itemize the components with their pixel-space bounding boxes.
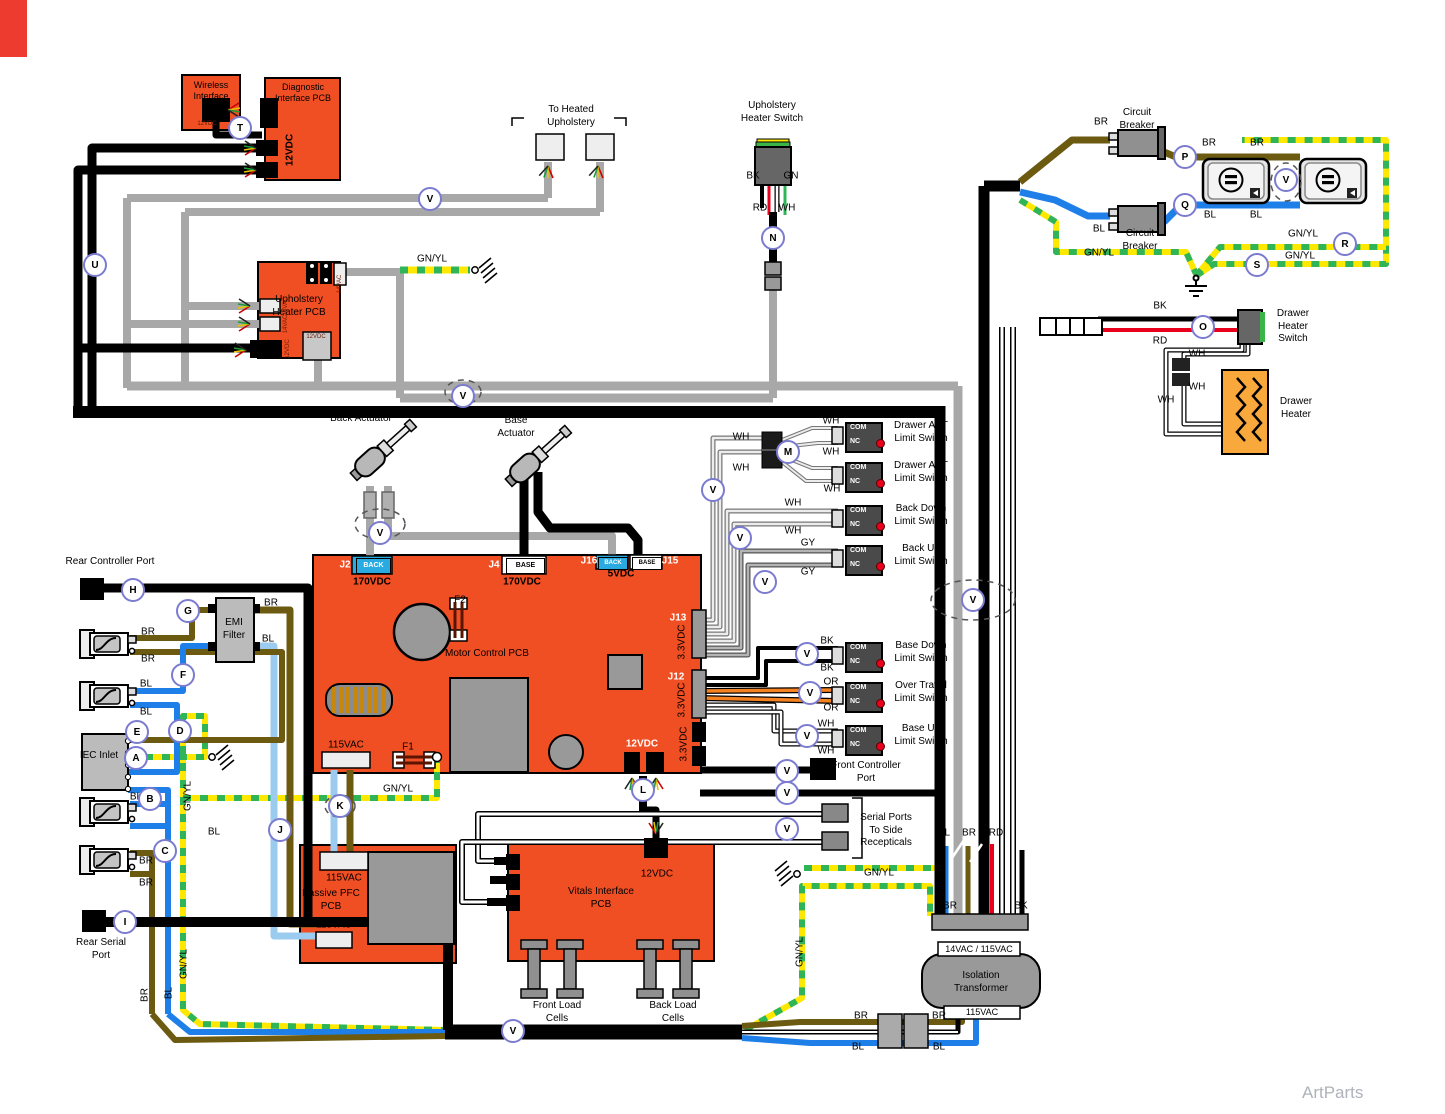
marker-p: P	[1173, 145, 1197, 169]
wire-label: BL	[933, 1042, 945, 1053]
j15-base-tag: BASE	[632, 557, 662, 570]
heated-upholstery-label: To Heated Upholstery	[531, 104, 611, 129]
j2-back-tag: BACK	[356, 558, 391, 574]
marker-o: O	[1191, 315, 1215, 339]
wire-label: BR	[932, 1011, 946, 1022]
marker-v: V	[775, 759, 799, 783]
passive-pfc-title: Passive PFC PCB	[291, 888, 371, 913]
wire-label: BK	[1153, 301, 1166, 312]
wireless-pcb-conn-label: 12VDC	[197, 121, 216, 127]
iec-inlet-label: IEC Inlet	[79, 750, 119, 763]
wire-label: BK	[820, 663, 833, 674]
marker-v: V	[798, 681, 822, 705]
j4-voltage: 170VDC	[503, 577, 541, 588]
diagnostic-pcb-conn-label: 12VDC	[285, 134, 296, 166]
wire-label: GN/YL	[417, 254, 447, 265]
rear-serial-port-label: Rear Serial Port	[66, 937, 136, 962]
wire-label: WH	[785, 526, 802, 537]
wire-label: WH	[1189, 382, 1206, 393]
marker-v: V	[368, 521, 392, 545]
motor-115vac-label: 115VAC	[328, 740, 364, 751]
back-actuator-label: Back Actuator	[330, 413, 392, 426]
wire-label: WH	[818, 746, 835, 757]
wire-label: BR	[139, 856, 153, 867]
watermark: ArtParts	[1302, 1083, 1363, 1103]
wire-label: GN/YL	[1285, 251, 1315, 262]
j12-voltage: 3.3VDC	[677, 682, 688, 717]
drawer-switch-label: DrawerHeaterSwitch	[1264, 308, 1322, 346]
front-load-cells-label: Front Load Cells	[526, 1000, 588, 1025]
wire-label: GN/YL	[864, 868, 894, 879]
wire-label: WH	[823, 447, 840, 458]
transformer-bottom-conn-label: 115VAC	[966, 1007, 998, 1017]
wire-label: WH	[779, 203, 796, 214]
marker-b: B	[138, 787, 162, 811]
marker-a: A	[124, 746, 148, 770]
wire-label: BL	[164, 987, 175, 999]
marker-v: V	[753, 570, 777, 594]
j12-label: J12	[668, 672, 685, 683]
wire-label: GN/YL	[183, 781, 194, 811]
side-serial-ports-label: Serial PortsTo SideRecepticals	[846, 812, 926, 850]
wire-label: BK	[746, 171, 759, 182]
marker-v: V	[418, 187, 442, 211]
j4-label: J4	[488, 560, 499, 571]
wire-label: WH	[1158, 395, 1175, 406]
j13-label: J13	[670, 613, 687, 624]
marker-v: V	[728, 526, 752, 550]
wire-label: BR	[854, 1011, 868, 1022]
pfc-115vac-label: 115VAC	[316, 920, 352, 931]
marker-v: V	[795, 724, 819, 748]
marker-v: V	[775, 817, 799, 841]
wire-label: BL	[1250, 210, 1262, 221]
marker-u: U	[83, 253, 107, 277]
upholstery-conn-12vdc: 12VDC	[285, 339, 291, 358]
wire-label: GN/YL	[1288, 229, 1318, 240]
f2-label: F2	[454, 595, 466, 606]
wire-label: BR	[1094, 117, 1108, 128]
wire-label: GY	[801, 538, 815, 549]
upholstery-conn-12vdc: 12VDC	[306, 334, 325, 340]
wire-label: GN/YL	[383, 784, 413, 795]
marker-l: L	[631, 778, 655, 802]
upholstery-switch-label: Upholstery Heater Switch	[736, 100, 808, 125]
marker-v: V	[1274, 168, 1298, 192]
marker-n: N	[761, 226, 785, 250]
wire-label: BR	[141, 654, 155, 665]
marker-c: C	[153, 839, 177, 863]
marker-r: R	[1333, 232, 1357, 256]
f1-label: F1	[402, 742, 414, 753]
wire-label: BR	[962, 828, 976, 839]
marker-h: H	[121, 578, 145, 602]
j11-voltage: 3.3VDC	[679, 726, 690, 761]
isolation-transformer-label: Isolation Transformer	[942, 970, 1020, 995]
marker-s: S	[1245, 253, 1269, 277]
wire-label: GN/YL	[795, 937, 806, 967]
wire-label: GN	[784, 171, 799, 182]
wire-label: BR	[141, 627, 155, 638]
wire-label: BR	[140, 988, 151, 1002]
wire-label: BL	[938, 828, 950, 839]
j15-label: J15	[662, 556, 679, 567]
marker-m: M	[776, 440, 800, 464]
emi-filter-label: EMI Filter	[214, 617, 254, 642]
drawer-heater-label: DrawerHeater	[1270, 396, 1322, 421]
wire-label: GY	[801, 567, 815, 578]
wire-label: BL	[140, 679, 152, 690]
marker-t: T	[228, 116, 252, 140]
wire-label: WH	[785, 498, 802, 509]
marker-j: J	[268, 818, 292, 842]
wire-label: OR	[824, 703, 839, 714]
marker-k: K	[328, 794, 352, 818]
wire-label: GN/YL	[179, 949, 190, 979]
upholstery-conn-14vac: 14VAC	[337, 275, 343, 294]
marker-v: V	[961, 588, 985, 612]
marker-v: V	[501, 1019, 525, 1043]
marker-g: G	[176, 599, 200, 623]
upholstery-pcb-title: Upholstery Heater PCB	[267, 294, 331, 319]
wire-label: WH	[1189, 349, 1206, 360]
j4-base-tag: BASE	[506, 558, 545, 574]
wire-label: RD	[753, 203, 767, 214]
base-actuator-label: Base Actuator	[485, 415, 547, 440]
wire-label: BL	[262, 634, 274, 645]
wire-label: BR	[943, 901, 957, 912]
marker-v: V	[775, 781, 799, 805]
wire-label: WH	[824, 484, 841, 495]
motor-12vdc-label: 12VDC	[626, 739, 658, 750]
wire-label: BL	[1204, 210, 1216, 221]
circuit-breaker-label: Circuit Breaker	[1107, 107, 1167, 132]
wire-label: BK	[820, 636, 833, 647]
wire-label: RD	[1153, 336, 1167, 347]
marker-q: Q	[1173, 193, 1197, 217]
wire-label: WH	[823, 416, 840, 427]
wire-label: BR	[139, 878, 153, 889]
rear-controller-port-label: Rear Controller Port	[65, 556, 155, 569]
vitals-pcb-title: Vitals Interface PCB	[566, 886, 636, 911]
wire-label: BL	[852, 1042, 864, 1053]
wire-label: BR	[264, 598, 278, 609]
wire-label: BR	[1202, 138, 1216, 149]
j13-voltage: 3.3VDC	[677, 624, 688, 659]
wire-label: WH	[733, 463, 750, 474]
pfc-115vac-label: 115VAC	[326, 873, 362, 884]
diagnostic-pcb-title: Diagnostic Interface PCB	[271, 82, 335, 105]
vitals-12vdc-label: 12VDC	[641, 869, 673, 880]
upholstery-conn-14vac: 14VAC	[283, 315, 289, 334]
transformer-top-conn-label: 14VAC / 115VAC	[945, 944, 1013, 954]
wire-label: GN/YL	[1084, 248, 1114, 259]
j2-label: J2	[339, 560, 350, 571]
motor-pcb-title: Motor Control PCB	[441, 648, 533, 661]
circuit-breaker-label: Circuit Breaker	[1110, 228, 1170, 253]
wire-label: BL	[140, 707, 152, 718]
wire-label: WH	[733, 432, 750, 443]
gray-wires	[127, 162, 958, 914]
wiring-diagram: Wireless Interface PCB 12VDC Diagnostic …	[0, 0, 1445, 1114]
marker-v: V	[701, 478, 725, 502]
wire-label: WH	[818, 719, 835, 730]
wire-label: BR	[1250, 138, 1264, 149]
corner-red-artifact	[0, 0, 27, 57]
wire-label: RD	[989, 828, 1003, 839]
wire-label: OR	[824, 677, 839, 688]
wire-label: BL	[208, 827, 220, 838]
wire-label: BK	[1014, 901, 1027, 912]
marker-f: F	[171, 663, 195, 687]
j16-label: J16	[581, 556, 598, 567]
wireless-pcb-title: Wireless Interface PCB	[183, 80, 239, 114]
diagram-canvas	[0, 0, 1445, 1114]
j16-back-tag: BACK	[598, 557, 628, 570]
back-load-cells-label: Back Load Cells	[642, 1000, 704, 1025]
upholstery-conn-14vac: 14VAC	[283, 297, 289, 316]
front-controller-port-label: Front Controller Port	[823, 760, 909, 785]
marker-i: I	[113, 910, 137, 934]
marker-v: V	[795, 642, 819, 666]
j15-voltage: 5VDC	[608, 569, 635, 580]
j2-voltage: 170VDC	[353, 577, 391, 588]
marker-v: V	[451, 384, 475, 408]
wire-label: BL	[1093, 224, 1105, 235]
marker-e: E	[125, 720, 149, 744]
marker-d: D	[168, 719, 192, 743]
